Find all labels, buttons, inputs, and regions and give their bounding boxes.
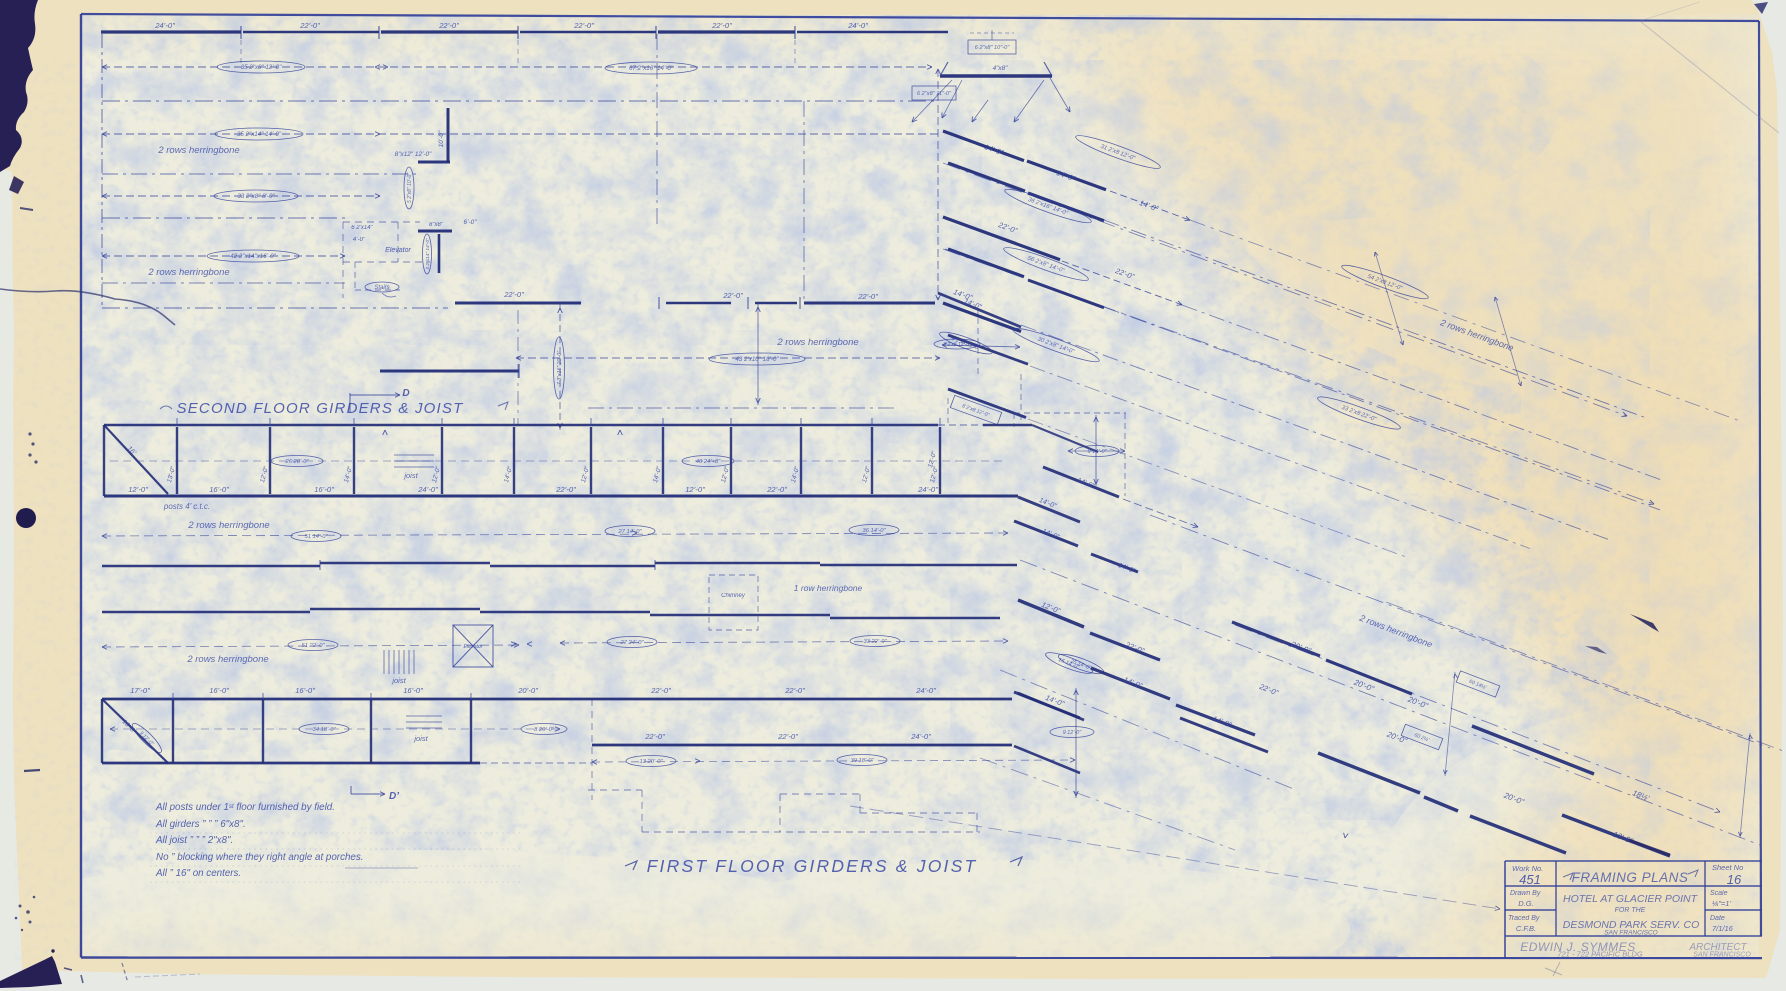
svg-text:4"x8": 4"x8" xyxy=(993,65,1009,72)
svg-text:22’-0": 22’-0" xyxy=(766,485,787,494)
svg-text:22’-0": 22’-0" xyxy=(722,291,743,300)
svg-text:Elevator: Elevator xyxy=(385,247,411,254)
svg-text:67 2"x16" 14’-0": 67 2"x16" 14’-0" xyxy=(629,65,674,72)
svg-text:Date: Date xyxy=(1710,915,1725,922)
svg-text:All posts under 1st floor furn: All posts under 1st floor furnished by f… xyxy=(155,802,335,813)
svg-text:4’-0": 4’-0" xyxy=(353,237,366,243)
svg-text:5 2"x8" 10’-0": 5 2"x8" 10’-0" xyxy=(407,173,413,203)
svg-text:35 2"x8" 12’-0": 35 2"x8" 12’-0" xyxy=(241,64,282,71)
svg-text:39 18’-0": 39 18’-0" xyxy=(850,758,874,764)
svg-text:20’-0": 20’-0" xyxy=(517,686,538,695)
svg-text:SAN FRANCISCO: SAN FRANCISCO xyxy=(1604,930,1657,937)
svg-text:D’: D’ xyxy=(389,791,399,802)
svg-text:Drawn By: Drawn By xyxy=(1510,890,1541,897)
svg-text:joist: joist xyxy=(403,471,418,480)
svg-text:22’-0": 22’-0" xyxy=(784,686,805,695)
svg-text:SECOND FLOOR GIRDERS & JOIST: SECOND FLOOR GIRDERS & JOIST xyxy=(177,400,465,417)
svg-text:Traced By: Traced By xyxy=(1508,915,1540,922)
svg-text:2 rows herringbone: 2 rows herringbone xyxy=(157,145,239,156)
svg-text:Scale: Scale xyxy=(1710,890,1728,897)
svg-text:24’-0": 24’-0" xyxy=(910,732,931,741)
svg-text:24’-0": 24’-0" xyxy=(417,485,438,494)
svg-text:22’-0": 22’-0" xyxy=(711,21,732,30)
svg-text:27 24’-0": 27 24’-0" xyxy=(619,640,644,646)
svg-text:Sheet No: Sheet No xyxy=(1712,863,1743,872)
svg-text:24’-0": 24’-0" xyxy=(154,21,175,30)
svg-text:22’-0": 22’-0" xyxy=(857,292,878,301)
svg-text:joist: joist xyxy=(413,734,428,743)
svg-text:16’-0": 16’-0" xyxy=(209,686,229,695)
svg-text:All joist ” ”: All joist ” ” ” 2"x8". xyxy=(155,835,233,846)
svg-text:51 22’-0": 51 22’-0" xyxy=(301,643,325,649)
svg-text:16: 16 xyxy=(1727,872,1742,887)
svg-text:6 2"x8" 10"-0": 6 2"x8" 10"-0" xyxy=(975,45,1010,51)
svg-text:34 18’-0": 34 18’-0" xyxy=(312,727,336,733)
svg-text:Chimney: Chimney xyxy=(721,593,746,599)
svg-text:22’-0": 22’-0" xyxy=(438,21,459,30)
svg-text:33 22’-0": 33 22’-0" xyxy=(863,639,887,645)
svg-text:27 14’-0": 27 14’-0" xyxy=(617,529,642,535)
svg-text:24’-0": 24’-0" xyxy=(915,686,936,695)
svg-text:6’-0": 6’-0" xyxy=(464,219,478,226)
svg-text:16’-0": 16’-0" xyxy=(403,686,423,695)
svg-text:26 28’-0": 26 28’-0" xyxy=(284,459,309,465)
svg-text:8 20’-0": 8 20’-0" xyxy=(534,727,555,733)
svg-text:8"x12" 12’-0": 8"x12" 12’-0" xyxy=(395,151,432,158)
svg-text:36 14’-0": 36 14’-0" xyxy=(862,528,886,534)
svg-text:42 2"x14"x16’-0": 42 2"x14"x16’-0" xyxy=(230,253,276,260)
svg-text:C.F.B.: C.F.B. xyxy=(1516,924,1536,933)
svg-text:All girders ” ”: All girders ” ” ” 6"x8". xyxy=(155,819,246,830)
svg-text:1 row herringbone: 1 row herringbone xyxy=(794,583,863,593)
svg-text:22’-0": 22’-0" xyxy=(555,485,576,494)
svg-text:51 14’-0": 51 14’-0" xyxy=(304,534,328,540)
svg-text:HOTEL AT GLACIER POINT: HOTEL AT GLACIER POINT xyxy=(1563,893,1699,905)
svg-text:12’-0": 12’-0" xyxy=(128,485,148,494)
svg-text:16’-0": 16’-0" xyxy=(295,686,315,695)
svg-text:7 3"x16" 20’-0": 7 3"x16" 20’-0" xyxy=(557,350,563,385)
svg-text:2 rows herringbone: 2 rows herringbone xyxy=(776,337,858,348)
svg-text:6 2’x14": 6 2’x14" xyxy=(351,225,373,231)
svg-text:16’-0": 16’-0" xyxy=(314,485,334,494)
svg-text:22’-0": 22’-0" xyxy=(644,732,665,741)
svg-text:2 rows herringbone: 2 rows herringbone xyxy=(147,267,229,278)
svg-text:451: 451 xyxy=(1519,872,1541,887)
svg-text:All ” 16" on centers.: All ” 16" on centers. xyxy=(155,868,241,879)
svg-text:10’-0": 10’-0" xyxy=(438,130,445,147)
svg-text:D.G.: D.G. xyxy=(1518,899,1533,908)
svg-text:D: D xyxy=(402,388,409,399)
svg-text:2 rows herringbone: 2 rows herringbone xyxy=(186,654,268,665)
svg-text:2 rows herringbone: 2 rows herringbone xyxy=(187,520,269,531)
svg-text:22’-0": 22’-0" xyxy=(573,21,594,30)
svg-text:8 2’x8 12’-0": 8 2’x8 12’-0" xyxy=(943,342,971,348)
svg-text:22’-0": 22’-0" xyxy=(777,732,798,741)
svg-text:9 14’-0": 9 14’-0" xyxy=(1087,449,1107,455)
svg-text:8"x8": 8"x8" xyxy=(429,222,444,228)
svg-text:SAN FRANCISCO: SAN FRANCISCO xyxy=(1693,952,1751,959)
svg-text:FOR THE: FOR THE xyxy=(1615,907,1646,914)
svg-text:7/1/16: 7/1/16 xyxy=(1712,924,1734,933)
svg-text:3 2"x14" 14’-0": 3 2"x14" 14’-0" xyxy=(425,238,431,270)
svg-text:17’-0": 17’-0" xyxy=(130,686,150,695)
svg-text:35 2"x14" 14’-0": 35 2"x14" 14’-0" xyxy=(237,131,282,138)
svg-text:721 - 722 PACIFIC BLDG: 721 - 722 PACIFIC BLDG xyxy=(1557,950,1642,959)
svg-text:Elevator: Elevator xyxy=(463,644,482,650)
svg-text:No ” blocking where they: No ” blocking where they right angle at … xyxy=(156,852,363,863)
svg-text:6 2"x8" 11"-0": 6 2"x8" 11"-0" xyxy=(917,91,952,97)
svg-text:⅛"=1’: ⅛"=1’ xyxy=(1712,899,1731,908)
svg-text:posts 4’ c.t.c.: posts 4’ c.t.c. xyxy=(163,502,210,511)
svg-text:FIRST FLOOR GIRDERS & JOIST: FIRST FLOOR GIRDERS & JOIST xyxy=(647,856,978,876)
svg-text:22’-0": 22’-0" xyxy=(650,686,671,695)
svg-text:16’-0": 16’-0" xyxy=(209,485,229,494)
svg-text:12’-0": 12’-0" xyxy=(685,485,705,494)
svg-text:22’-0": 22’-0" xyxy=(299,21,320,30)
svg-text:40 24’+8": 40 24’+8" xyxy=(696,459,721,465)
svg-text:24’-0": 24’-0" xyxy=(917,485,938,494)
svg-text:13 20’-0": 13 20’-0" xyxy=(639,759,663,765)
svg-text:43 2’x10" 18’-0": 43 2’x10" 18’-0" xyxy=(735,356,779,363)
svg-text:24’-0": 24’-0" xyxy=(847,21,868,30)
svg-text:FRAMING PLANS: FRAMING PLANS xyxy=(1572,870,1689,885)
svg-text:joist: joist xyxy=(391,676,406,685)
svg-text:22’-0": 22’-0" xyxy=(503,290,524,299)
svg-text:33 2"x8" 8’-0": 33 2"x8" 8’-0" xyxy=(237,193,275,200)
svg-text:9 12’-0": 9 12’-0" xyxy=(1063,730,1082,736)
